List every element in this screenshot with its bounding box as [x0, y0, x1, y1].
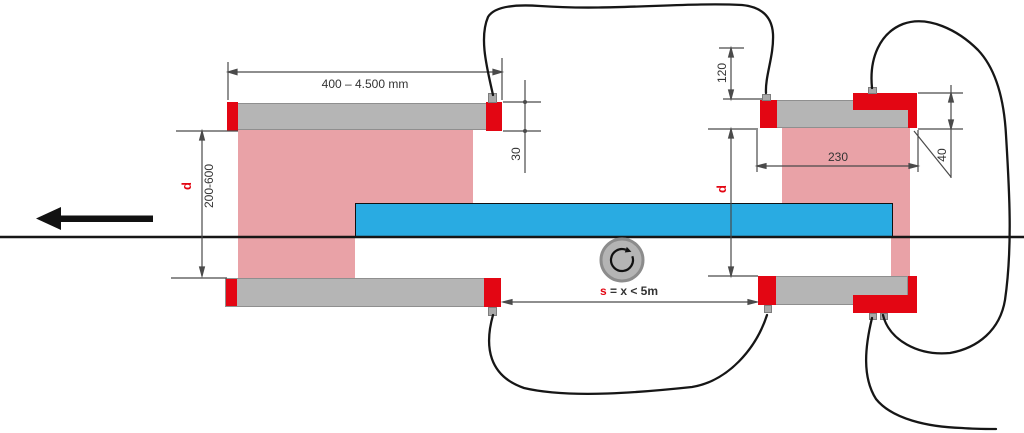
right-cap-height-label: 40: [934, 135, 950, 175]
left-diameter-range-label: 200-600: [201, 151, 217, 221]
right-offset-label: 120: [714, 48, 730, 98]
cable: [866, 318, 996, 429]
left-diameter-symbol: d: [179, 156, 195, 216]
span-expression: = x < 5m: [610, 284, 658, 298]
diagram-linework: [0, 0, 1024, 433]
dimension-diagram: 400 – 4.500 mm d 200-600 30 120 d 230 40…: [0, 0, 1024, 433]
span-symbol: s: [600, 284, 607, 298]
right-diameter-symbol: d: [714, 159, 730, 219]
cable: [872, 21, 1010, 353]
span-dimension-label: s = x < 5m: [569, 283, 689, 299]
feed-direction-arrow-icon: [36, 207, 153, 230]
cable: [489, 315, 767, 394]
top-length-label: 400 – 4.500 mm: [275, 76, 455, 92]
shaft-end: [601, 239, 643, 281]
left-cap-height-label: 30: [508, 134, 524, 174]
dimension-span: [503, 300, 757, 305]
right-block-width-label: 230: [808, 149, 868, 165]
